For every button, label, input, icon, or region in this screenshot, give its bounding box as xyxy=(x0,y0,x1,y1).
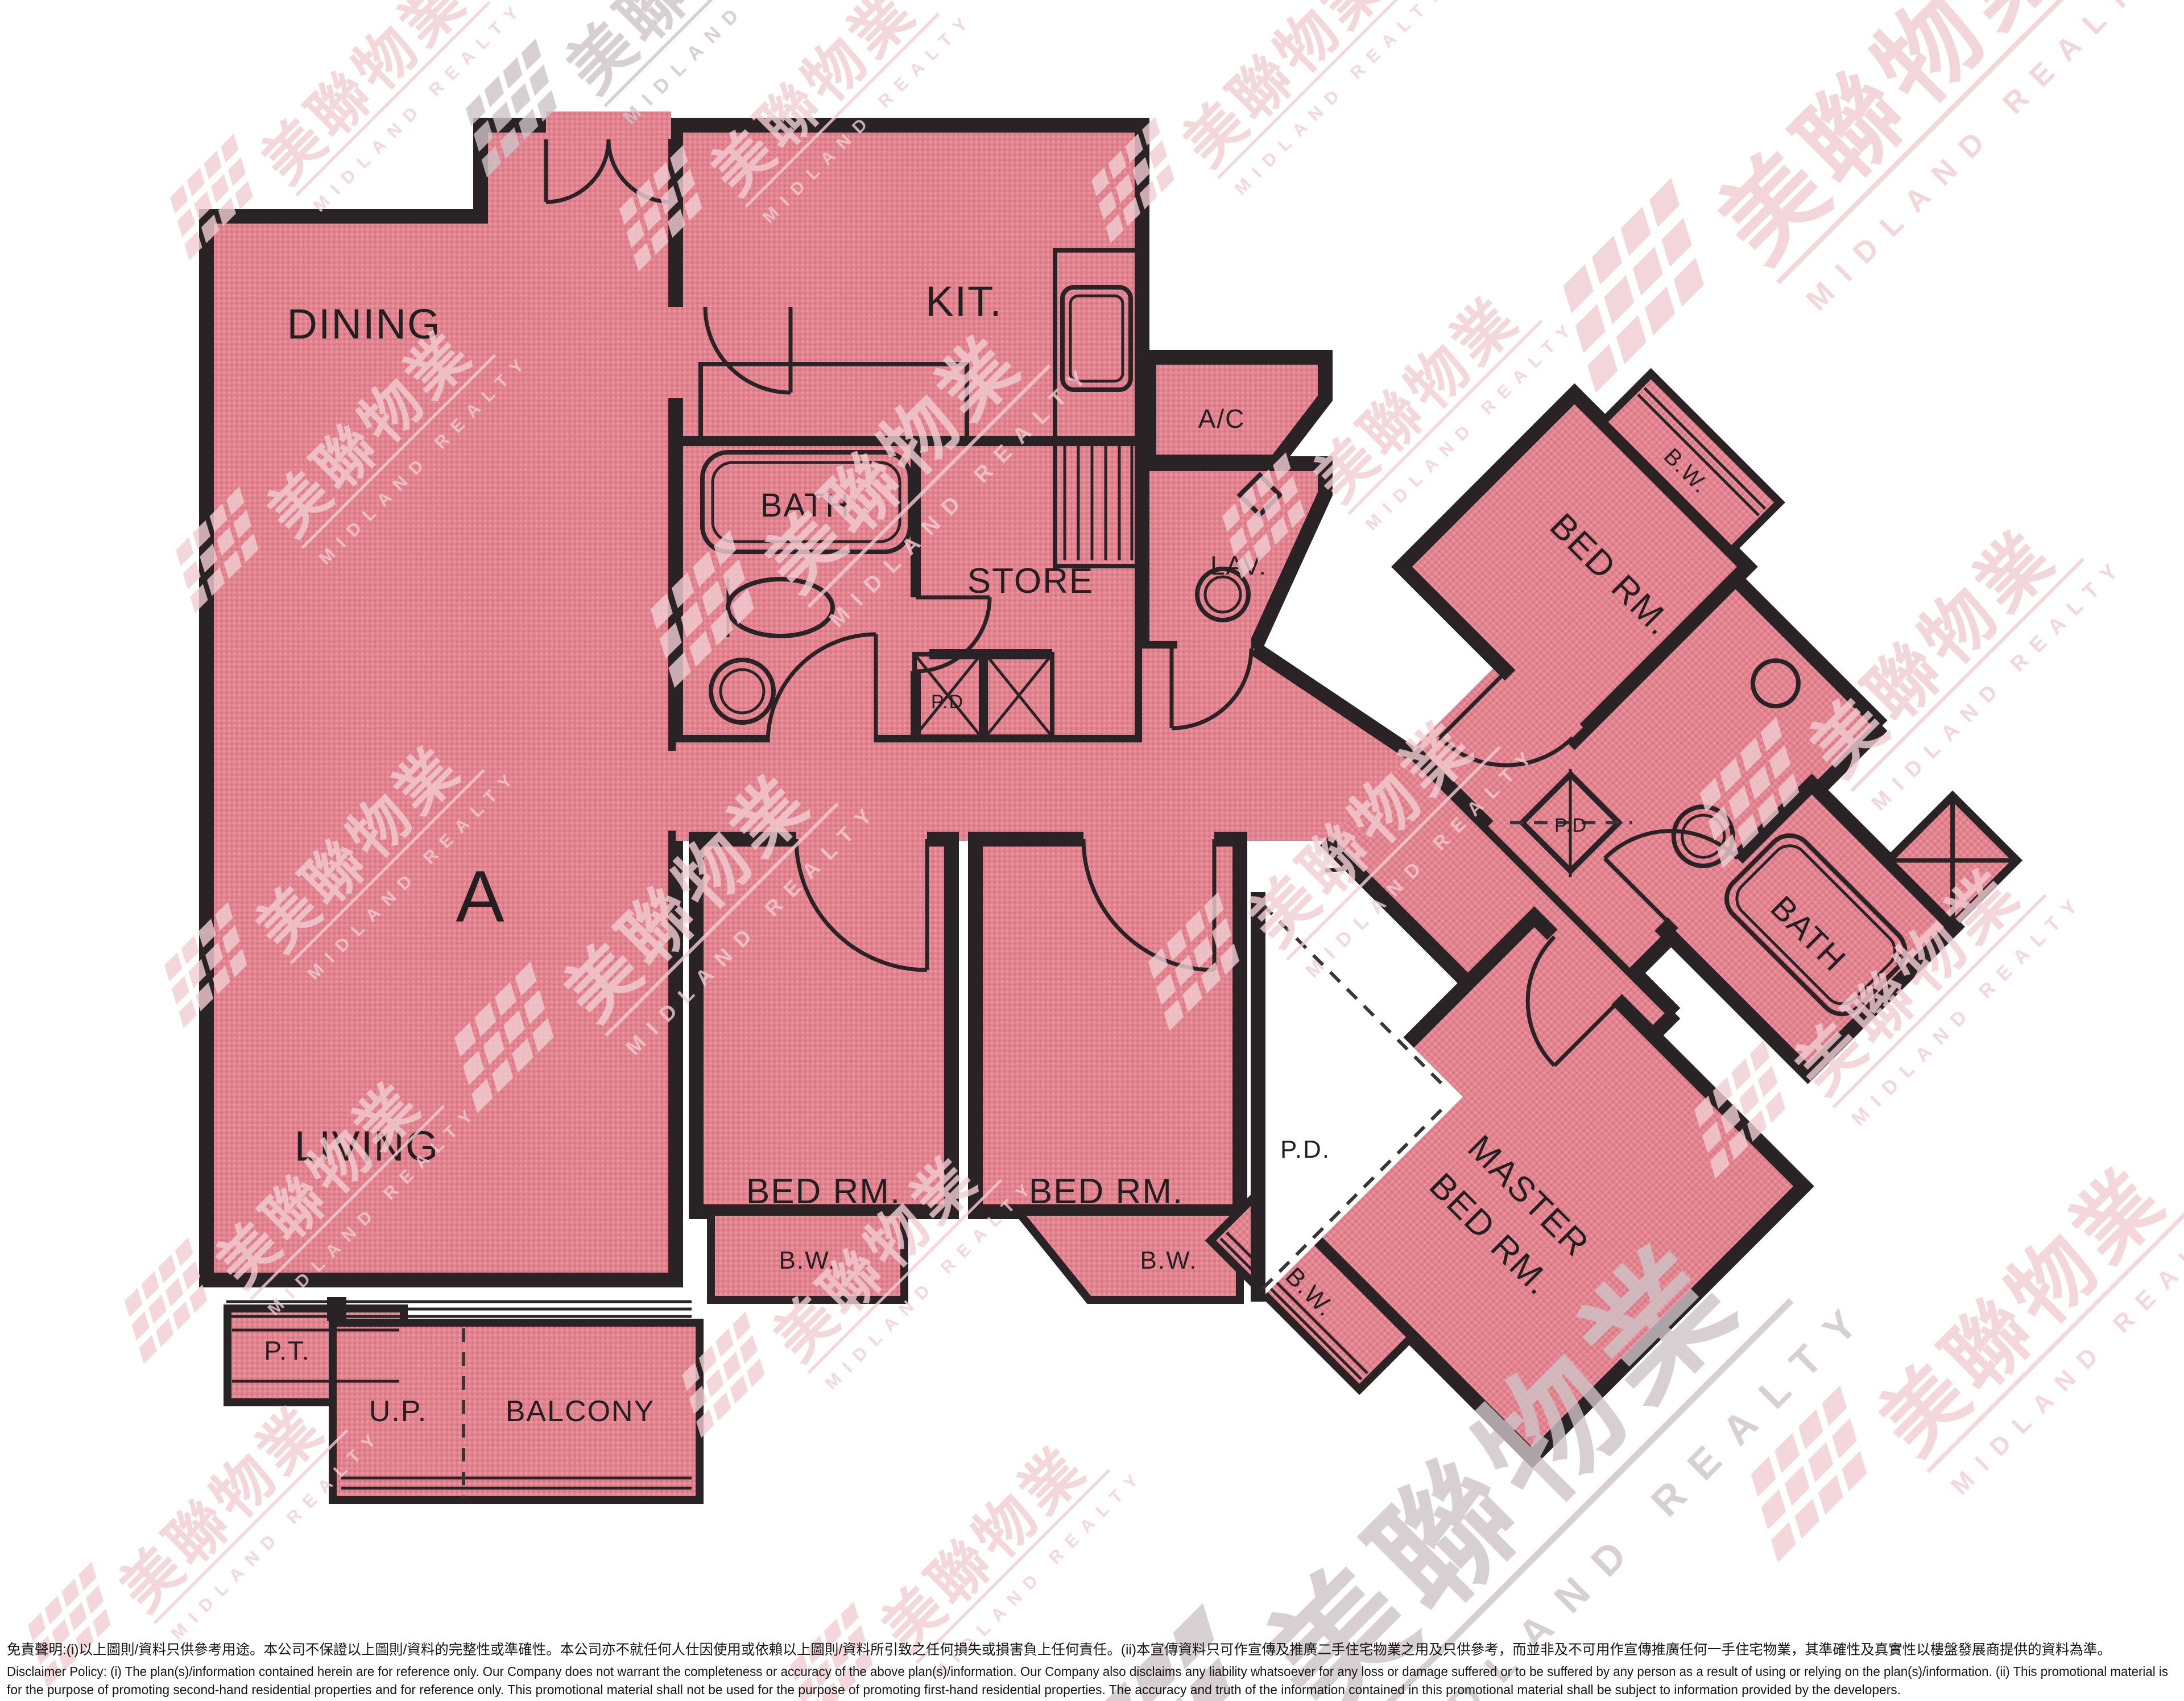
label-unit: A xyxy=(456,856,505,938)
disclaimer-zh: 免責聲明:(i)以上圖則/資料只供參考用途。本公司不保證以上圖則/資料的完整性或… xyxy=(7,1642,2111,1658)
disclaimer-en-2: for the purpose of promoting second-hand… xyxy=(7,1682,1901,1697)
disclaimer-en-1: Disclaimer Policy: (i) The plan(s)/infor… xyxy=(7,1664,2168,1679)
opening-kitchen xyxy=(662,307,689,398)
label-pt: P.T. xyxy=(264,1336,310,1365)
opening-bedroom-2 xyxy=(1083,826,1214,852)
label-up: U.P. xyxy=(369,1395,427,1428)
label-pd-shaft: P.D xyxy=(931,691,964,713)
room-bedroom-2 xyxy=(975,839,1240,1212)
label-pd-diamond: P.D xyxy=(1554,815,1587,836)
disclaimer: 免責聲明:(i)以上圖則/資料只供參考用途。本公司不保證以上圖則/資料的完整性或… xyxy=(7,1642,2168,1697)
label-store: STORE xyxy=(967,562,1094,601)
floor-plan-page: DINING KIT. A/C BATH STORE LAV. P.D A LI… xyxy=(0,0,2184,1701)
opening-bath xyxy=(768,729,876,755)
label-bedroom-2: BED RM. xyxy=(1029,1172,1184,1211)
label-bw-2: B.W. xyxy=(1140,1246,1198,1274)
label-bedroom-1: BED RM. xyxy=(746,1172,901,1211)
opening-living-corridor xyxy=(662,751,689,831)
label-ac: A/C xyxy=(1198,404,1246,433)
label-balcony: BALCONY xyxy=(506,1395,655,1428)
opening-lavatory xyxy=(1177,636,1251,661)
opening-entry xyxy=(546,112,671,139)
label-kitchen: KIT. xyxy=(925,278,1002,325)
floor-plan-svg: DINING KIT. A/C BATH STORE LAV. P.D A LI… xyxy=(0,0,2184,1701)
label-pd-void: P.D. xyxy=(1280,1136,1330,1163)
